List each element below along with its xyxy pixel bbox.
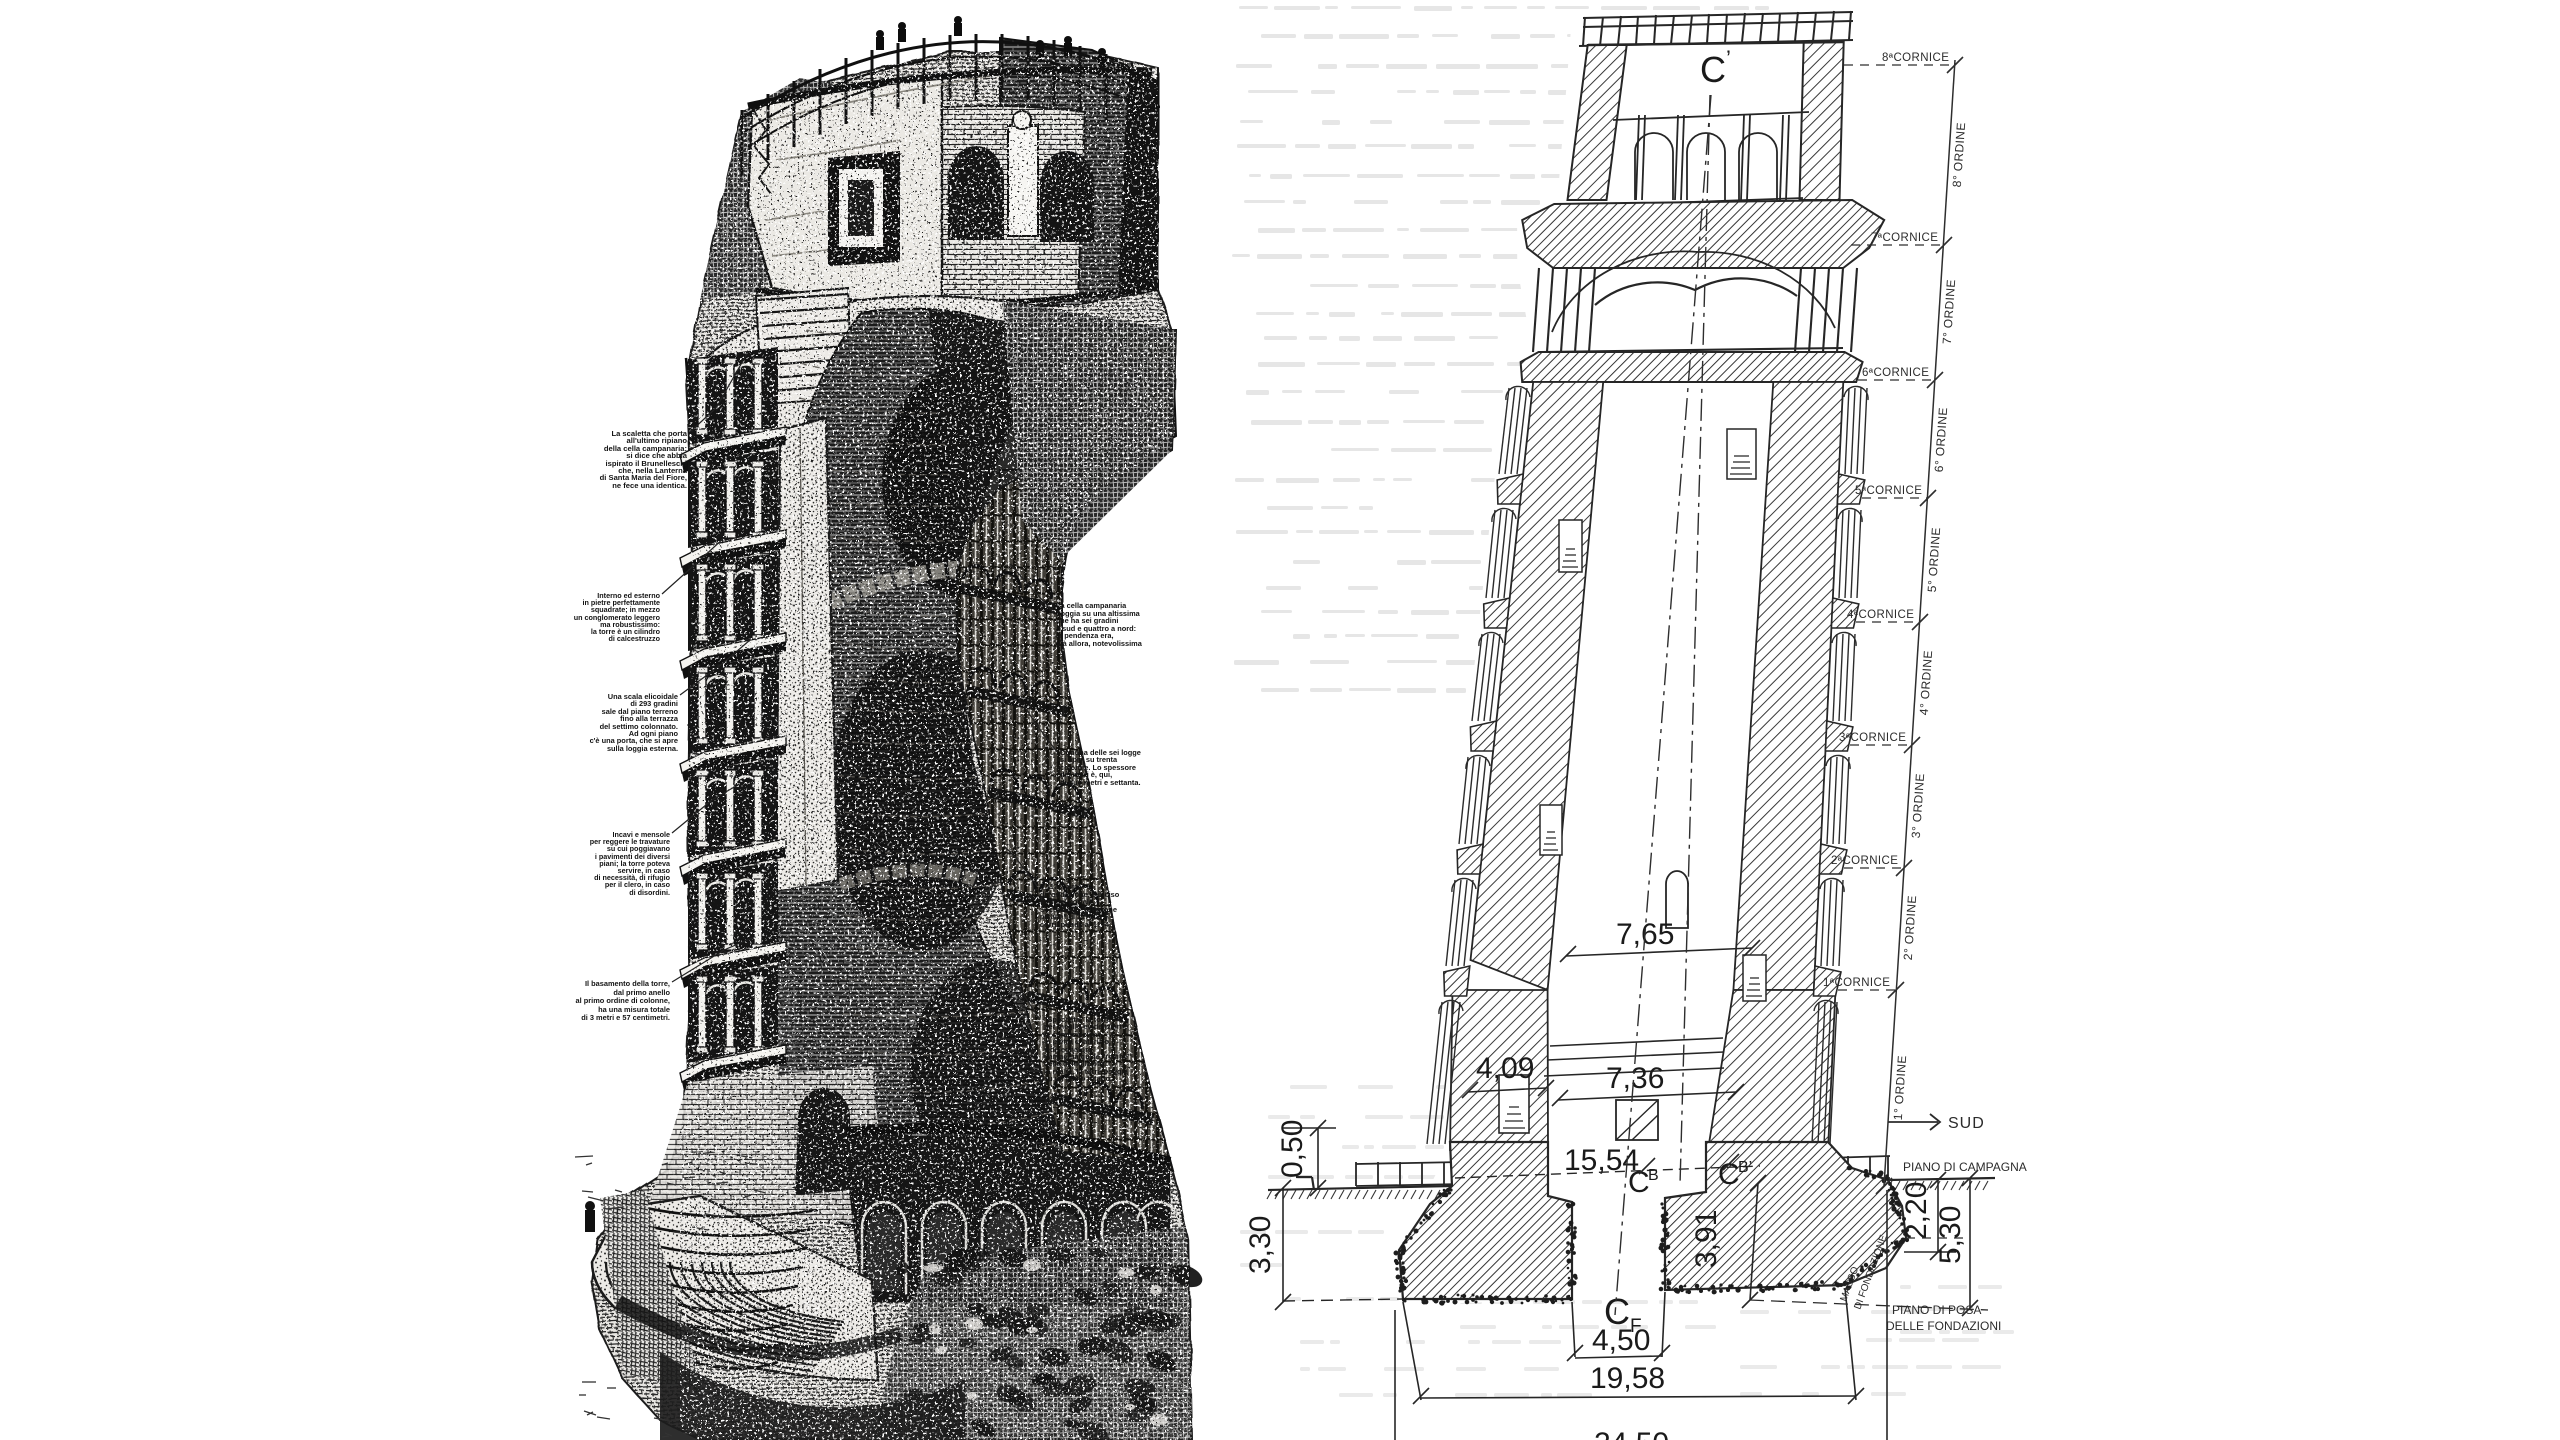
svg-text:PIANO DI CAMPAGNA: PIANO DI CAMPAGNA (1903, 1160, 2027, 1174)
svg-text:5,30: 5,30 (1934, 1206, 1967, 1264)
svg-text:’: ’ (1726, 46, 1731, 71)
svg-text:2,20: 2,20 (1900, 1182, 1933, 1240)
svg-text:3ªCORNICE: 3ªCORNICE (1839, 732, 1906, 744)
svg-text:B’: B’ (1738, 1159, 1752, 1176)
svg-text:1ªCORNICE: 1ªCORNICE (1823, 977, 1890, 989)
svg-text:5ªCORNICE: 5ªCORNICE (1855, 485, 1922, 497)
svg-text:3,91: 3,91 (1690, 1210, 1723, 1268)
svg-text:19,58: 19,58 (1590, 1362, 1665, 1395)
svg-text:DELLE FONDAZIONI: DELLE FONDAZIONI (1886, 1319, 2001, 1333)
svg-text:24,50: 24,50 (1594, 1427, 1669, 1440)
svg-text:C: C (1718, 1158, 1740, 1191)
svg-text:2ªCORNICE: 2ªCORNICE (1831, 855, 1898, 867)
svg-text:4,50: 4,50 (1592, 1324, 1650, 1357)
svg-text:PIANO DI POSA: PIANO DI POSA (1892, 1303, 1981, 1317)
svg-text:La cella campanariapoggia su u: La cella campanariapoggia su una altissi… (1056, 601, 1143, 648)
svg-text:3,30: 3,30 (1244, 1216, 1277, 1274)
svg-text:B: B (1648, 1167, 1659, 1184)
svg-text:4,09: 4,09 (1476, 1052, 1534, 1085)
svg-text:6ªCORNICE: 6ªCORNICE (1862, 367, 1929, 379)
svg-text:4ªCORNICE: 4ªCORNICE (1847, 609, 1914, 621)
svg-text:7ªCORNICE: 7ªCORNICE (1871, 232, 1938, 244)
svg-text:Il 1173, datadi fondazione, è: Il 1173, datadi fondazione, è incisosopr… (1040, 882, 1120, 929)
svg-text:8ªCORNICE: 8ªCORNICE (1882, 52, 1949, 64)
svg-text:0,50: 0,50 (1276, 1120, 1309, 1178)
svg-text:SUD: SUD (1948, 1115, 1985, 1132)
svg-text:Il basamento della torre,dal p: Il basamento della torre,dal primo anell… (576, 979, 671, 1022)
svg-text:7,36: 7,36 (1606, 1062, 1664, 1095)
svg-text:Ognuna delle sei loggesi apre: Ognuna delle sei loggesi apre su trentac… (1060, 748, 1141, 787)
svg-text:C: C (1628, 1166, 1650, 1199)
svg-text:C: C (1700, 49, 1726, 90)
